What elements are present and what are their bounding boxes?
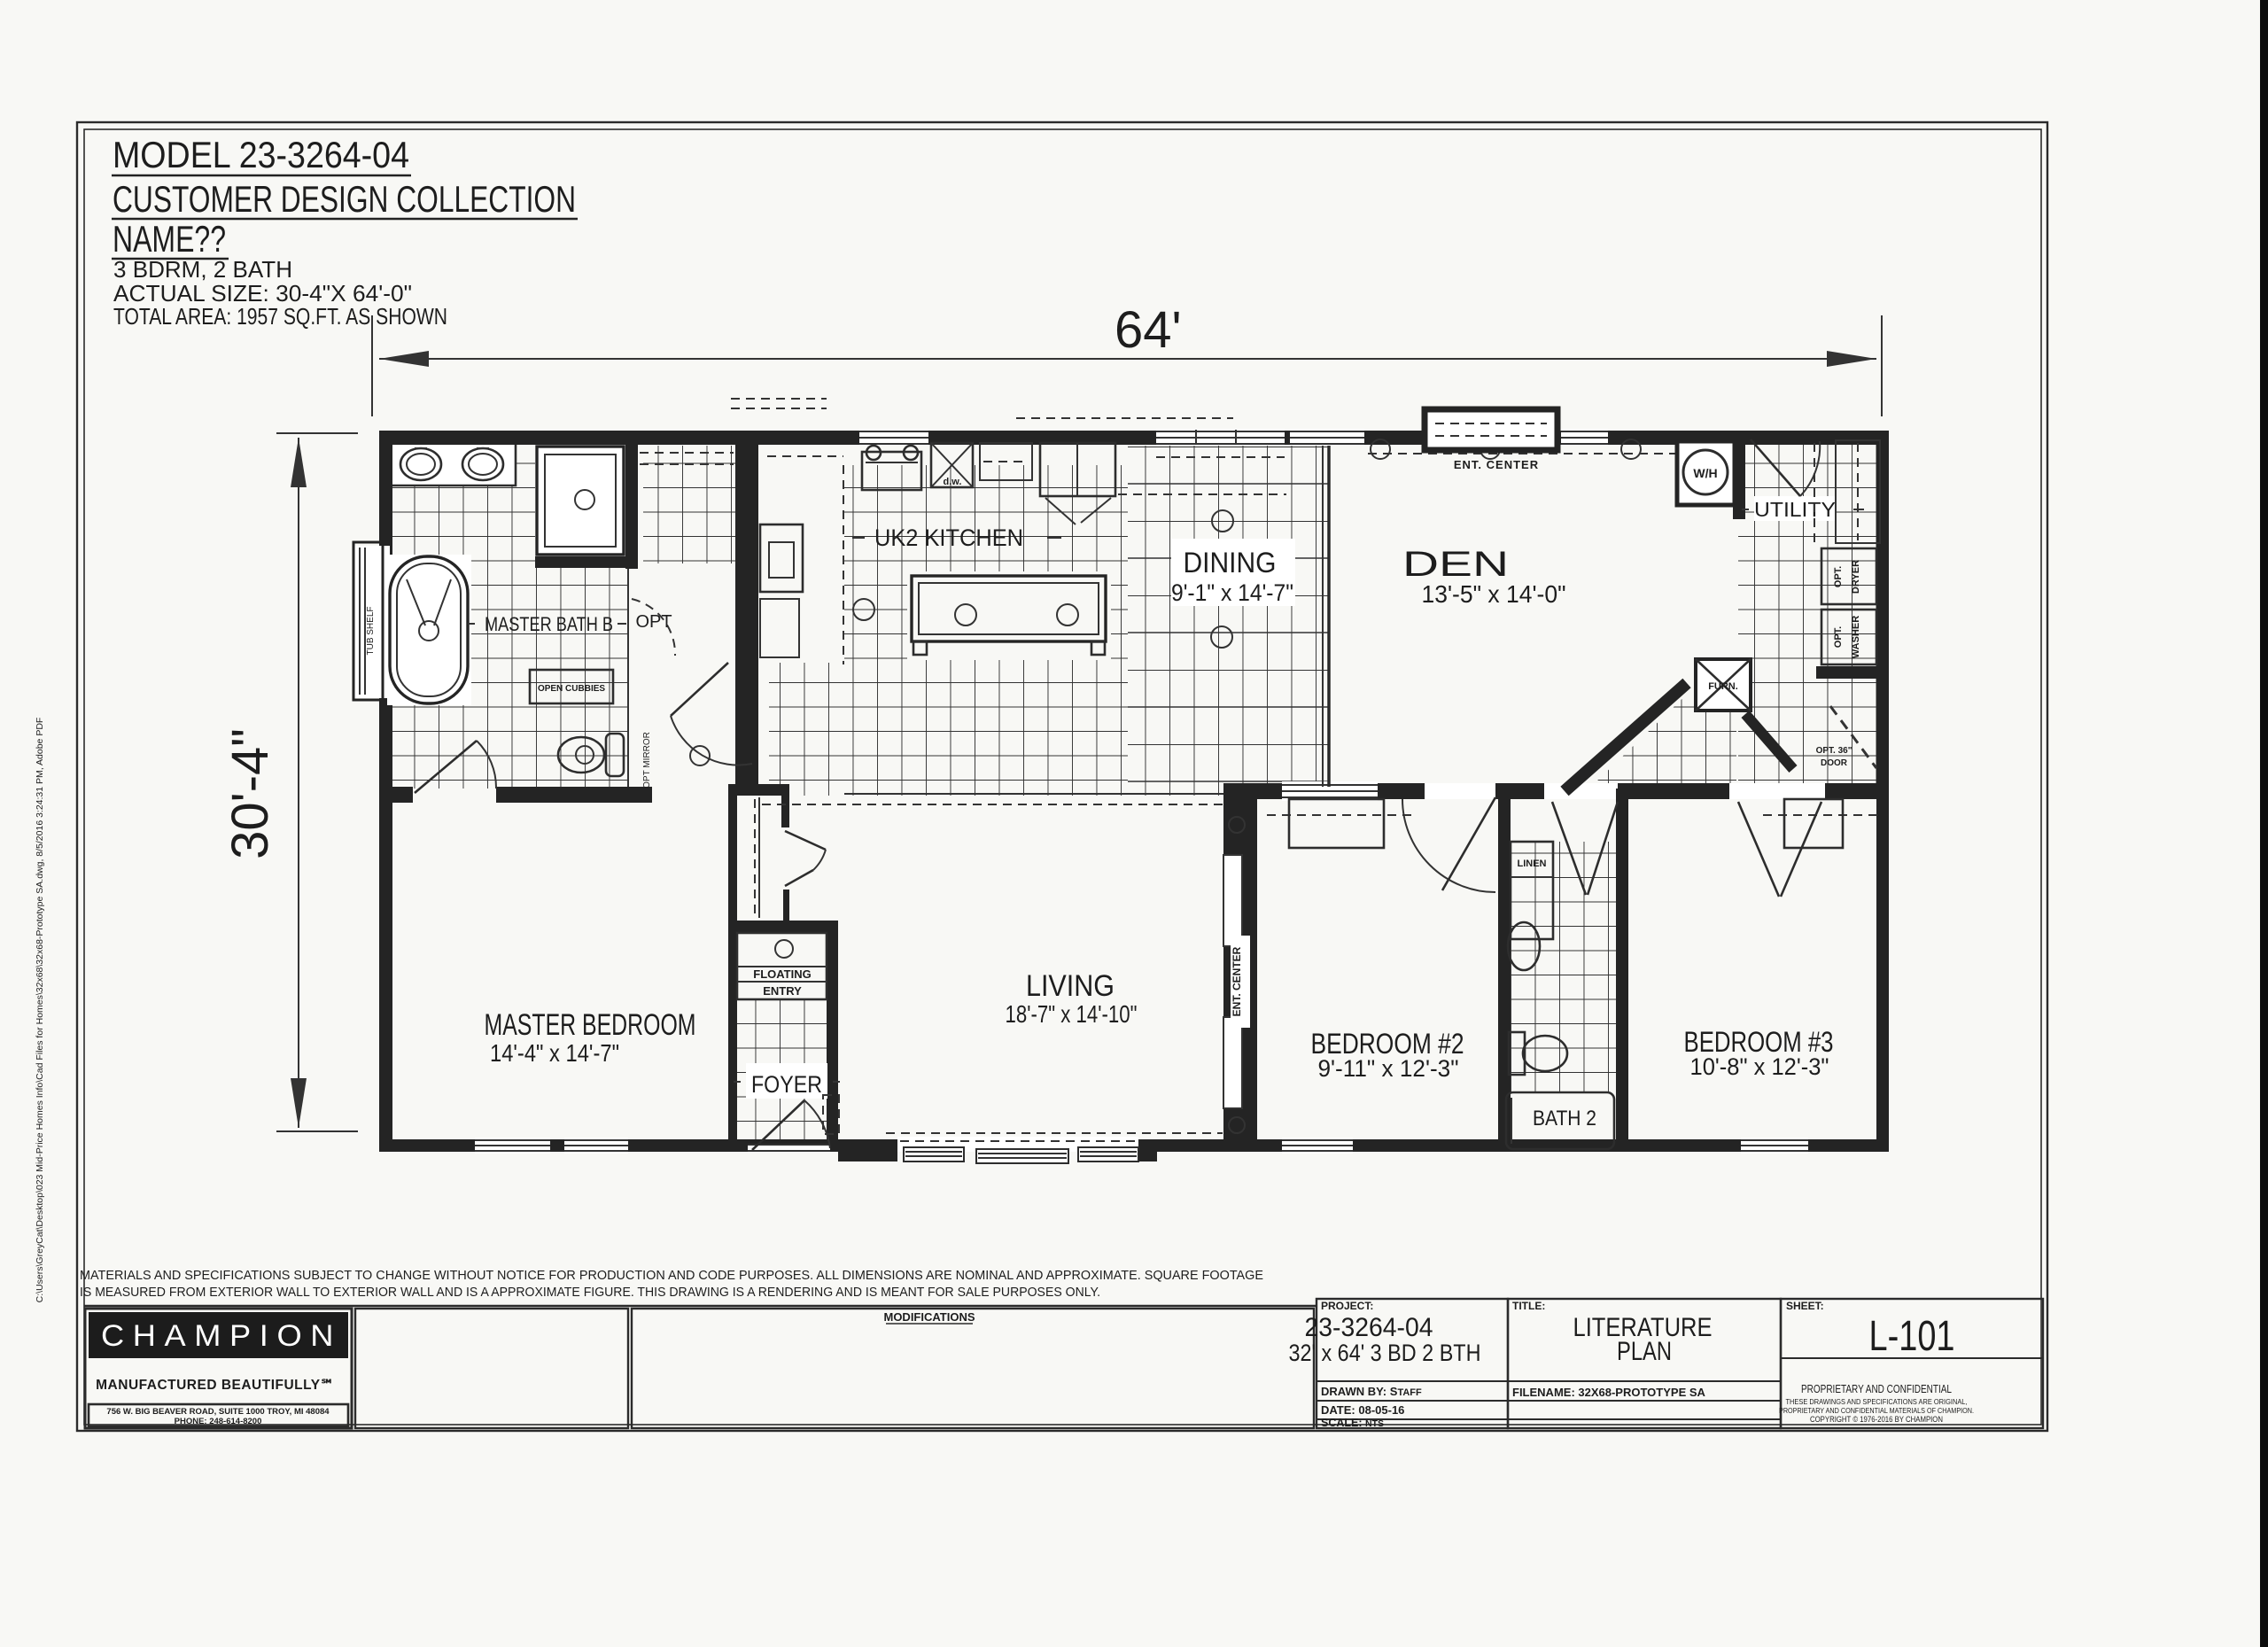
svg-text:TOTAL AREA: 1957 SQ.FT. AS SH: TOTAL AREA: 1957 SQ.FT. AS SHOWN — [113, 303, 447, 330]
svg-text:BATH 2: BATH 2 — [1533, 1107, 1596, 1130]
svg-text:MATERIALS AND SPECIFICATIONS S: MATERIALS AND SPECIFICATIONS SUBJECT TO … — [80, 1268, 1263, 1283]
svg-text:MASTER BATH B: MASTER BATH B — [485, 613, 613, 635]
svg-text:MASTER BEDROOM: MASTER BEDROOM — [485, 1008, 696, 1042]
svg-text:3 BDRM, 2 BATH: 3 BDRM, 2 BATH — [113, 256, 292, 283]
svg-text:TUB SHELF: TUB SHELF — [366, 606, 376, 655]
svg-text:FILENAME: 32X68-PROTOTYPE SA: FILENAME: 32X68-PROTOTYPE SA — [1512, 1386, 1706, 1399]
svg-text:9'-1" x 14'-7": 9'-1" x 14'-7" — [1171, 579, 1293, 606]
svg-text:UK2 KITCHEN: UK2 KITCHEN — [874, 524, 1023, 551]
svg-text:OPT MIRROR: OPT MIRROR — [642, 732, 652, 789]
svg-text:d.w.: d.w. — [944, 477, 962, 487]
svg-text:OPT. 36": OPT. 36" — [1816, 746, 1852, 756]
svg-text:FOYER: FOYER — [751, 1071, 822, 1098]
svg-text:9'-11" x 12'-3": 9'-11" x 12'-3" — [1318, 1055, 1459, 1082]
svg-text:UTILITY: UTILITY — [1754, 498, 1836, 521]
svg-text:SCALE: NTS: SCALE: NTS — [1321, 1417, 1384, 1429]
svg-text:WASHER: WASHER — [1851, 616, 1861, 658]
svg-text:OPT: OPT — [635, 612, 672, 632]
svg-text:THESE DRAWINGS AND SPECIFICATI: THESE DRAWINGS AND SPECIFICATIONS ARE OR… — [1786, 1397, 1968, 1406]
svg-text:DEN: DEN — [1402, 545, 1509, 584]
svg-text:PROJECT:: PROJECT: — [1321, 1300, 1373, 1312]
svg-text:FURN.: FURN. — [1708, 681, 1738, 692]
svg-text:30'-4": 30'-4" — [221, 728, 279, 859]
svg-text:ENT. CENTER: ENT. CENTER — [1454, 458, 1539, 471]
svg-text:DRYER: DRYER — [1851, 560, 1861, 594]
svg-text:64': 64' — [1115, 301, 1182, 359]
svg-text:IS MEASURED FROM EXTERIOR WALL: IS MEASURED FROM EXTERIOR WALL TO EXTERI… — [80, 1285, 1100, 1300]
svg-text:NAME??: NAME?? — [113, 218, 226, 260]
svg-text:PROPRIETARY AND CONFIDENTIAL M: PROPRIETARY AND CONFIDENTIAL MATERIALS O… — [1779, 1406, 1974, 1415]
svg-text:ENTRY: ENTRY — [763, 984, 802, 998]
svg-text:OPT.: OPT. — [1833, 566, 1844, 587]
svg-text:MODEL 23-3264-04: MODEL 23-3264-04 — [113, 134, 409, 175]
svg-text:23-3264-04: 23-3264-04 — [1305, 1313, 1433, 1342]
svg-text:PLAN: PLAN — [1617, 1337, 1672, 1366]
svg-text:TITLE:: TITLE: — [1512, 1300, 1545, 1312]
svg-text:L-101: L-101 — [1869, 1313, 1955, 1360]
svg-text:DRAWN BY: STAFF: DRAWN BY: STAFF — [1321, 1385, 1422, 1398]
svg-text:14'-4" x 14'-7": 14'-4" x 14'-7" — [490, 1039, 619, 1067]
svg-text:DINING: DINING — [1184, 547, 1277, 579]
svg-text:FLOATING: FLOATING — [753, 967, 811, 981]
svg-text:COPYRIGHT © 1976-2016 BY CHAMP: COPYRIGHT © 1976-2016 BY CHAMPION — [1810, 1415, 1943, 1424]
svg-text:13'-5" x 14'-0": 13'-5" x 14'-0" — [1422, 580, 1566, 608]
svg-text:C:\Users\GreyCat\Desktop\023 M: C:\Users\GreyCat\Desktop\023 Mid-Price H… — [35, 718, 45, 1303]
svg-text:10'-8" x 12'-3": 10'-8" x 12'-3" — [1690, 1053, 1829, 1080]
svg-text:DATE: 08-05-16: DATE: 08-05-16 — [1321, 1403, 1404, 1417]
svg-text:LINEN: LINEN — [1518, 858, 1547, 869]
svg-text:LIVING: LIVING — [1026, 969, 1115, 1003]
svg-text:CUSTOMER DESIGN COLLECTION: CUSTOMER DESIGN COLLECTION — [113, 178, 576, 220]
svg-text:32' x 64' 3 BD 2 BTH: 32' x 64' 3 BD 2 BTH — [1289, 1340, 1481, 1366]
svg-text:CHAMPION: CHAMPION — [101, 1319, 342, 1353]
svg-text:OPEN CUBBIES: OPEN CUBBIES — [538, 684, 605, 694]
svg-text:18'-7" x 14'-10": 18'-7" x 14'-10" — [1006, 1000, 1138, 1028]
svg-text:W/H: W/H — [1693, 466, 1717, 480]
svg-text:MANUFACTURED BEAUTIFULLY℠: MANUFACTURED BEAUTIFULLY℠ — [96, 1378, 335, 1393]
svg-text:756 W. BIG BEAVER ROAD, SUITE: 756 W. BIG BEAVER ROAD, SUITE 1000 TROY,… — [106, 1407, 330, 1417]
svg-text:SHEET:: SHEET: — [1786, 1300, 1824, 1312]
svg-text:MODIFICATIONS: MODIFICATIONS — [883, 1310, 975, 1324]
svg-text:PROPRIETARY AND CONFIDENTIAL: PROPRIETARY AND CONFIDENTIAL — [1801, 1383, 1952, 1395]
svg-text:PHONE: 248-614-8200: PHONE: 248-614-8200 — [175, 1417, 262, 1426]
svg-text:OPT.: OPT. — [1833, 626, 1844, 648]
svg-text:DOOR: DOOR — [1821, 758, 1848, 768]
svg-text:ENT. CENTER: ENT. CENTER — [1231, 946, 1243, 1016]
